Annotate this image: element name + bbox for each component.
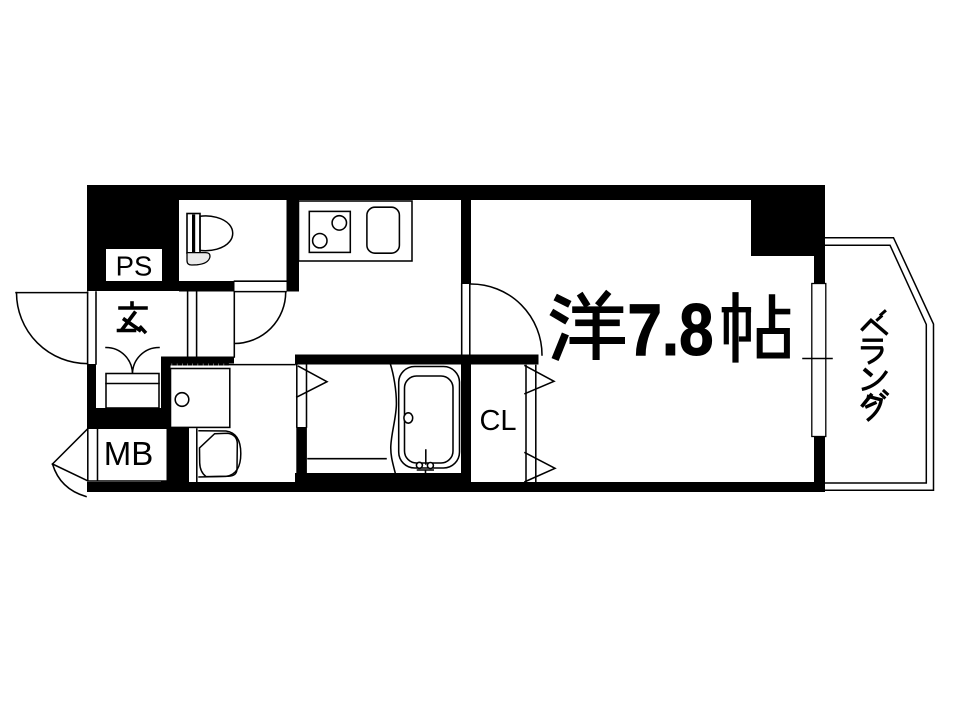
svg-text:MB: MB xyxy=(104,435,154,472)
svg-text:7.8: 7.8 xyxy=(628,288,714,371)
svg-text:PS: PS xyxy=(116,251,153,282)
svg-text:CL: CL xyxy=(479,405,516,437)
